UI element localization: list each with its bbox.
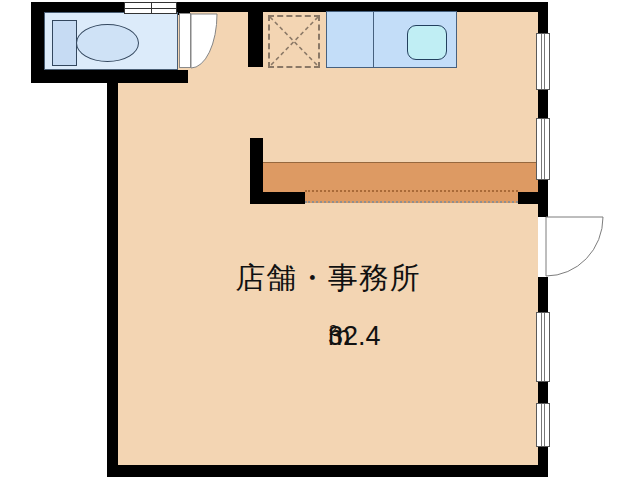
opening-dashed-line-lower xyxy=(305,201,518,203)
floor-plan: 店舗・事務所 32.4m2 xyxy=(0,0,640,480)
wall-right-segment-6 xyxy=(538,447,548,477)
wall-partition-horizontal xyxy=(250,192,305,204)
wall-right-segment-3 xyxy=(538,180,548,217)
wall-right-segment-5 xyxy=(538,382,548,403)
toilet-tank-icon xyxy=(52,20,77,66)
wall-top xyxy=(31,2,548,12)
entrance-door-swing-icon xyxy=(546,217,603,276)
wall-counter-right-stub xyxy=(518,192,538,204)
room-label: 店舗・事務所 xyxy=(118,258,538,299)
area-exponent: 2 xyxy=(329,321,337,338)
wall-bottom xyxy=(107,465,548,477)
window-glass-line xyxy=(541,34,545,89)
window-glass-line xyxy=(541,404,545,446)
wall-left xyxy=(107,70,118,477)
window-glass-line xyxy=(541,313,545,381)
window-right-1 xyxy=(536,33,550,90)
toilet-bowl-icon xyxy=(76,24,139,62)
window-right-2 xyxy=(536,118,550,180)
window-glass-line xyxy=(541,119,545,179)
window-toilet-top xyxy=(124,2,177,14)
wall-right-segment-2 xyxy=(538,90,548,118)
window-right-4 xyxy=(536,403,550,447)
window-right-3 xyxy=(536,312,550,382)
wall-right-segment-1 xyxy=(538,2,548,33)
opening-dashed-line-upper xyxy=(305,190,518,192)
toilet-door-leaf xyxy=(179,13,191,68)
wall-right-segment-4 xyxy=(538,277,548,312)
appliance-space-box xyxy=(268,15,320,68)
window-center-tick xyxy=(151,3,152,13)
entrance-door-opening xyxy=(538,217,548,277)
wall-stub-kitchen-left xyxy=(248,12,263,67)
kitchen-sink-icon xyxy=(407,25,447,60)
kitchen-counter-divider xyxy=(373,12,374,67)
